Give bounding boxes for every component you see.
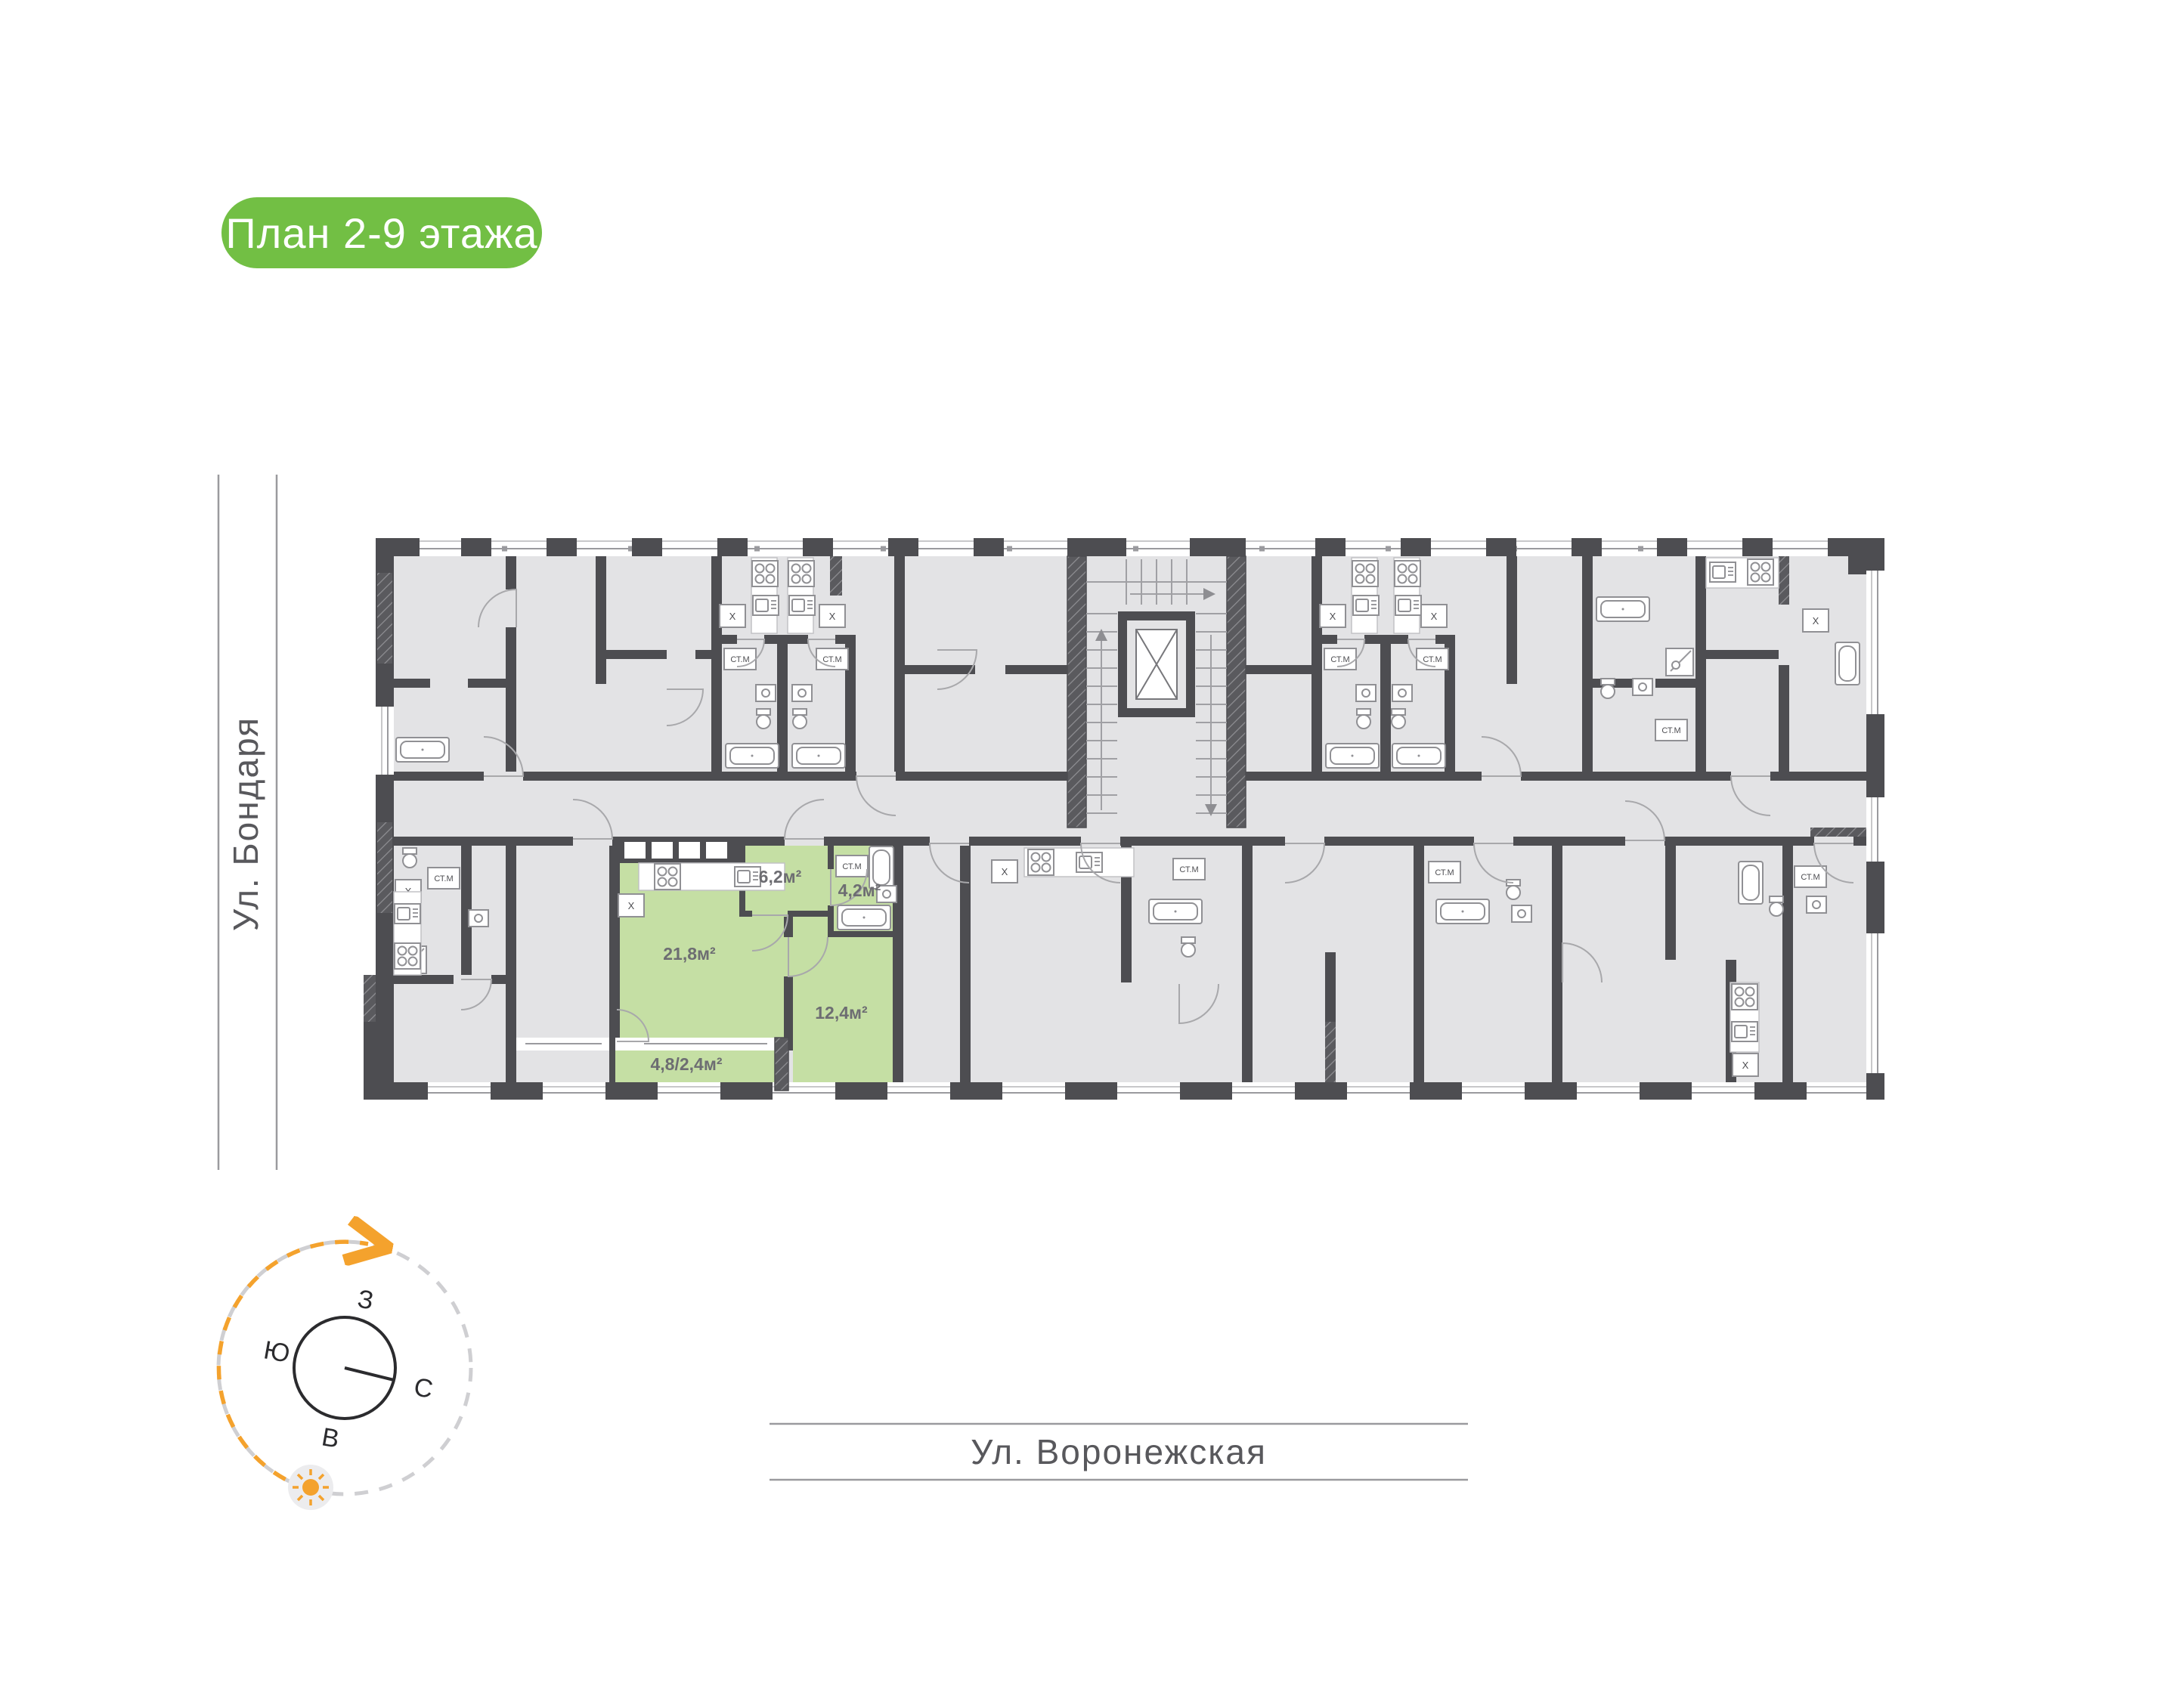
elevator [1123,616,1191,713]
svg-text:СТ.М: СТ.М [730,655,749,664]
street-left: Ул. Бондаря [218,475,277,1170]
sun-icon [288,1465,333,1510]
svg-text:СТ.М: СТ.М [434,874,453,883]
floor-badge: План 2-9 этажа [221,197,542,268]
svg-text:СТ.М: СТ.М [1330,655,1349,664]
svg-text:X: X [1002,866,1008,877]
facade-left [364,538,394,1100]
svg-text:СТ.М: СТ.М [1435,868,1454,877]
svg-text:СТ.М: СТ.М [1179,865,1198,874]
svg-text:X: X [729,611,736,622]
svg-text:СТ.М: СТ.М [1801,873,1819,882]
svg-text:X: X [1813,615,1819,627]
svg-text:X: X [1431,611,1438,622]
area-label-bedroom: 12,4м² [815,1003,868,1023]
street-left-label: Ул. Бондаря [226,716,265,931]
facade-bottom [376,1082,1884,1100]
compass-east: В [320,1422,342,1453]
area-label-bathroom: 4,2м² [838,880,881,900]
building: СТ.М СТ.М СТ.М СТ.М СТ.М СТ.М СТ.М СТ.М … [364,538,1884,1100]
svg-text:X: X [1330,611,1336,622]
compass-south: Ю [262,1335,292,1368]
area-label-hall: 6,2м² [759,867,802,886]
area-label-kitchen-living: 21,8м² [663,944,716,964]
compass: З Ю С В [218,1242,471,1510]
compass-north: С [412,1372,435,1404]
compass-west: З [355,1285,376,1316]
svg-text:СТ.М: СТ.М [842,862,861,871]
svg-text:X: X [829,611,836,622]
street-bottom: Ул. Воронежская [770,1424,1468,1480]
street-bottom-label: Ул. Воронежская [971,1432,1267,1471]
svg-text:СТ.М: СТ.М [1423,655,1442,664]
svg-text:X: X [1742,1060,1749,1071]
svg-text:СТ.М: СТ.М [1661,726,1680,735]
svg-text:СТ.М: СТ.М [822,655,841,664]
area-label-balcony: 4,8/2,4м² [650,1054,722,1074]
floor-plan-page: План 2-9 этажа [0,0,2177,1708]
svg-text:X: X [628,900,635,911]
